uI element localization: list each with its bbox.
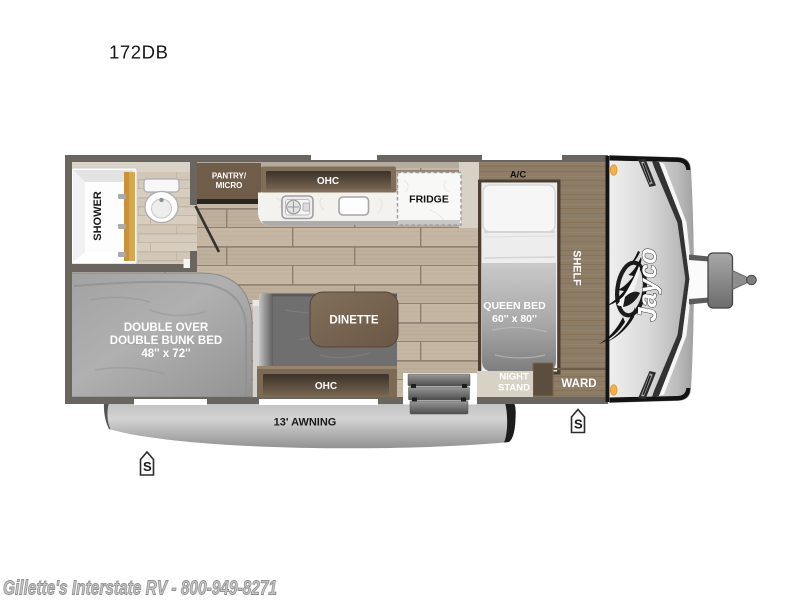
svg-text:QUEEN BED: QUEEN BED [483, 300, 546, 312]
svg-text:PANTRY/: PANTRY/ [212, 172, 247, 181]
svg-text:FRIDGE: FRIDGE [409, 194, 449, 206]
svg-text:13' AWNING: 13' AWNING [274, 417, 337, 429]
svg-text:WARD: WARD [561, 378, 596, 390]
svg-text:OHC: OHC [315, 381, 337, 392]
svg-text:S: S [143, 459, 152, 474]
svg-text:172DB: 172DB [109, 42, 169, 63]
svg-text:SHELF: SHELF [571, 250, 583, 286]
svg-text:SHOWER: SHOWER [92, 191, 104, 241]
svg-text:S: S [574, 417, 583, 432]
svg-text:DINETTE: DINETTE [329, 315, 379, 327]
svg-text:48'' x 72'': 48'' x 72'' [141, 348, 191, 360]
svg-text:OHC: OHC [317, 176, 339, 187]
svg-text:NIGHT: NIGHT [499, 372, 529, 383]
svg-text:Gillette's Interstate RV - 800: Gillette's Interstate RV - 800-949-8271 [3, 578, 277, 600]
svg-text:A/C: A/C [510, 170, 527, 181]
svg-text:STAND: STAND [498, 383, 530, 394]
svg-text:MICRO: MICRO [216, 181, 243, 190]
svg-text:60'' x 80'': 60'' x 80'' [492, 313, 537, 325]
svg-text:DOUBLE OVER: DOUBLE OVER [124, 322, 209, 334]
svg-text:Jayco: Jayco [632, 248, 662, 322]
svg-text:DOUBLE BUNK BED: DOUBLE BUNK BED [110, 335, 222, 347]
